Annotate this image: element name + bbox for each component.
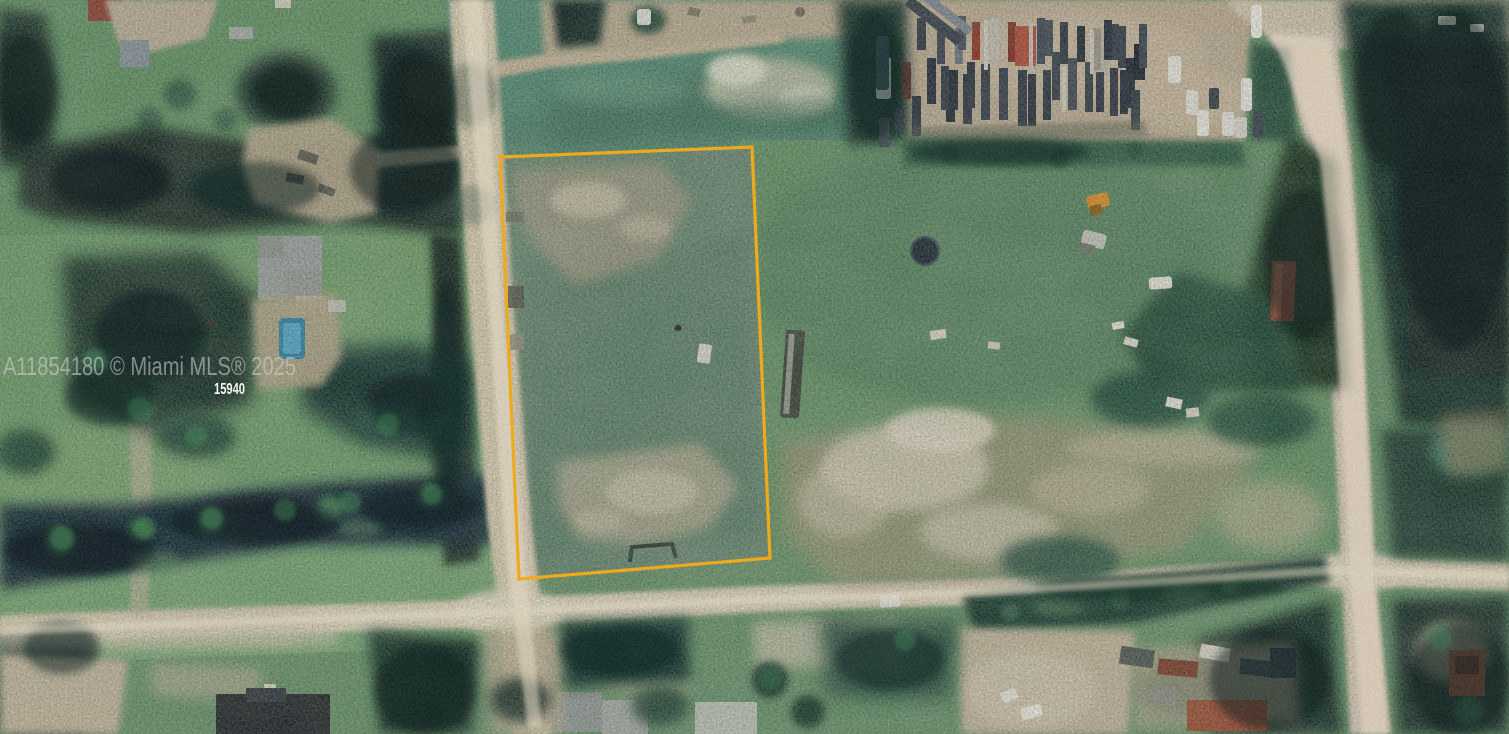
svg-text:A11854180 © Miami MLS® 2025: A11854180 © Miami MLS® 2025: [3, 351, 296, 381]
svg-text:15940: 15940: [214, 381, 245, 398]
